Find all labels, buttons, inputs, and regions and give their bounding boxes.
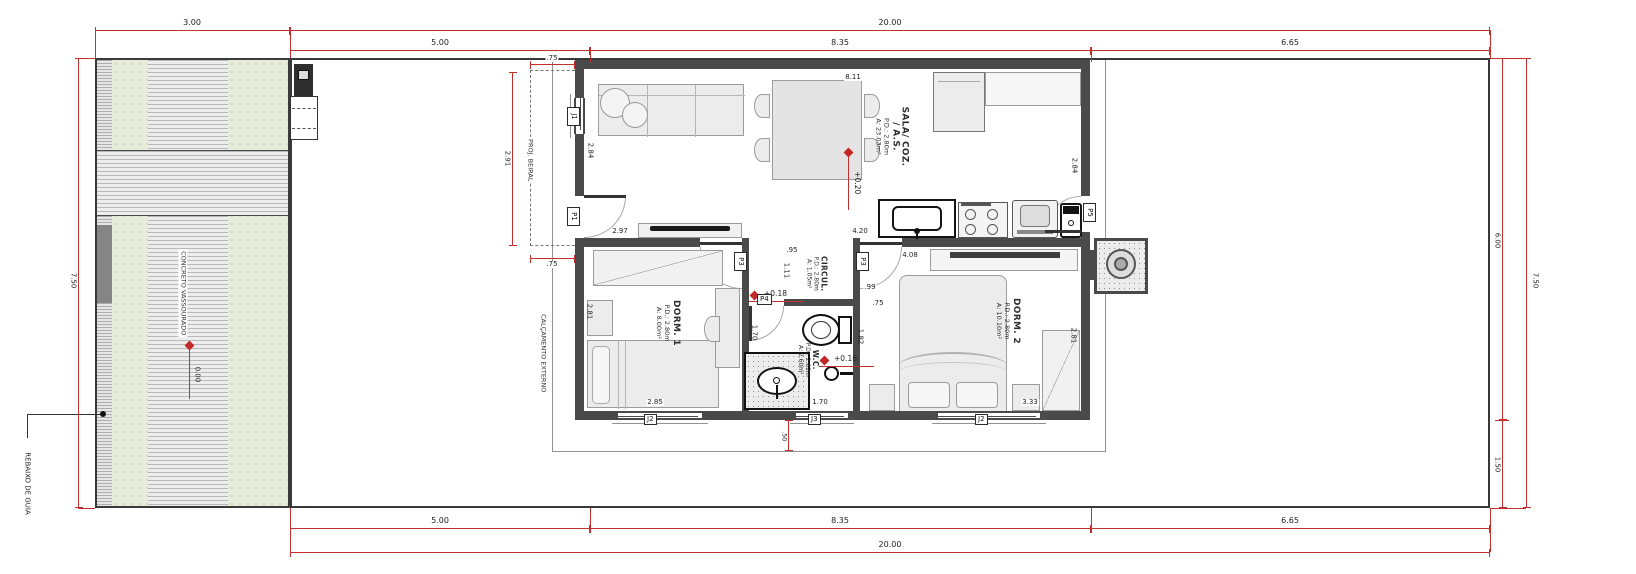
fridge (933, 72, 985, 132)
sofa-pouf-2 (622, 102, 648, 128)
ext-line (78, 58, 95, 59)
kitchen-counter-top (985, 72, 1081, 106)
dim-line-bot-seg3 (1091, 528, 1490, 529)
house-wall-top (575, 60, 1090, 69)
driveway-outline (95, 58, 290, 508)
ext-line (590, 508, 591, 528)
dim-line-top-seg3 (1091, 50, 1490, 51)
tag-j1: J1 (567, 107, 580, 126)
ext-line (1490, 58, 1526, 59)
house-wall-right-1 (1081, 60, 1090, 196)
dim-line-eave-w2 (530, 258, 575, 259)
dim-back-right: 1.50 (1491, 448, 1503, 480)
ext-line (1490, 30, 1491, 58)
tag-p3-dorm2: P3 (856, 252, 869, 271)
curb-leader-dot (100, 411, 106, 417)
ext-line (1490, 508, 1526, 509)
level-marker-sala-line (848, 156, 849, 210)
dining-chair (754, 138, 770, 162)
toilet-tank (838, 316, 852, 344)
dim-top-seg3: 6.65 (1281, 39, 1299, 47)
wall-divider-left (575, 238, 700, 247)
pillow-dorm2 (908, 382, 950, 408)
wardrobe-dorm1 (593, 250, 723, 286)
dim-line-lot-width-bottom (290, 552, 1490, 553)
dim-line-top-seg1 (290, 50, 590, 51)
dim-top-seg1: 5.00 (431, 39, 449, 47)
dim-lot-width-bottom: 20.00 (879, 541, 902, 549)
curb-leader-h (27, 414, 103, 415)
wall-divider-right (902, 238, 1081, 247)
walkway-label: CALÇAMENTO EXTERNO (536, 298, 550, 408)
window-j3-wc (796, 411, 848, 420)
ext-line (1091, 508, 1092, 528)
tag-j3: J3 (808, 414, 821, 425)
room-label-dorm2: DORM. 2 P.D.: 2.80m A: 10.10m² (988, 286, 1028, 356)
dim-wc-height: 1.70 (749, 318, 759, 346)
tag-p4: P4 (757, 294, 772, 305)
tag-p5: P5 (1083, 203, 1096, 222)
tag-j2-dorm1: J2 (644, 414, 657, 425)
door-p3-dorm2-leaf (860, 242, 902, 245)
ext-line (1495, 420, 1509, 421)
house-wall-left-1 (575, 60, 584, 98)
dim-dorm2-height: 2.81 (1068, 320, 1078, 350)
dim-line-drive-width (95, 30, 290, 31)
dim-eave-len: 2.91 (501, 140, 513, 176)
laundry-tank-stub (1088, 250, 1094, 280)
chair-dorm1 (704, 316, 720, 342)
dim-line-eave-top (530, 64, 575, 65)
tag-j2-dorm2: J2 (975, 414, 988, 425)
dim-bot-seg1: 5.00 (431, 517, 449, 525)
door-p5-leaf (1045, 230, 1081, 233)
dim-lot-height-right: 7.50 (1529, 262, 1541, 298)
dim-dorm2-width: 3.33 (1021, 399, 1039, 406)
dim-drive-width: 3.00 (183, 19, 201, 27)
dim-lot-height-left: 7.50 (67, 262, 79, 298)
dim-line-bot-seg2 (590, 528, 1091, 529)
ext-line (1490, 508, 1491, 552)
pillow-dorm2 (956, 382, 998, 408)
shelf-dorm2-bar (950, 252, 1060, 258)
eave-label: PROJ. BEIRAL (524, 118, 537, 202)
tag-p1: P1 (567, 207, 580, 226)
dim-bot-seg2: 8.35 (831, 517, 849, 525)
dim-sink-counter: 4.20 (851, 228, 869, 235)
dim-wc-right: 1.82 (855, 322, 865, 350)
tag-p3-dorm1: P3 (734, 252, 747, 271)
dim-lot-width-top: 20.00 (879, 19, 902, 27)
level-marker-wc-lower-line (819, 366, 874, 367)
level-marker-sala: +0.20 (851, 160, 863, 206)
dim-top-seg2: 8.35 (831, 39, 849, 47)
dim-tv-wall: 2.97 (611, 228, 629, 235)
driveway-surface-label: CONCRETO VASSOURADO (174, 228, 192, 358)
dim-shelf: 4.08 (901, 252, 919, 259)
room-label-circ: CIRCUL. P.D.: 2.80m A: 1.05m² (800, 248, 834, 300)
house-wall-left-3 (575, 238, 584, 420)
dim-sala-left: 2.84 (585, 135, 595, 165)
dim-line-lot-width-top (290, 30, 1490, 31)
curb-note-label: REBAIXO DE GUIA (20, 440, 34, 526)
ext-line (1091, 50, 1092, 62)
level-marker-driveway: 0.00 (191, 352, 203, 396)
level-marker-wc-lower: +0.16 (834, 355, 857, 363)
nightstand-dorm2-left (869, 384, 895, 411)
stove (958, 202, 1008, 238)
gate-post-dash-top (292, 108, 316, 109)
ext-line (290, 508, 291, 552)
room-label-dorm1: DORM. 1 P.D.: 2.80m A: 8.00m² (648, 288, 688, 358)
gate-post-dash-bottom (292, 128, 316, 129)
gate-post-box (290, 96, 318, 140)
curb-leader-v (27, 414, 28, 438)
ext-line (590, 50, 591, 62)
sink-faucet-stem (916, 233, 918, 239)
dining-chair (754, 94, 770, 118)
laundry-tank-center (1114, 257, 1128, 271)
door-p3-dorm1-leaf (700, 242, 742, 245)
ext-line (78, 508, 95, 509)
dim-eave-w2: .75 (545, 261, 558, 268)
dim-eave-top: .75 (545, 55, 558, 62)
window-j2-dorm2 (938, 411, 1040, 420)
window-j2-dorm1 (618, 411, 702, 420)
dim-line-top-seg2 (590, 50, 1091, 51)
dim-sala-right: 2.84 (1069, 150, 1079, 180)
dim-dorm1-height: 2.81 (584, 296, 594, 326)
dim-walk-offset: .50 (779, 424, 789, 448)
washbasin-stem (776, 385, 778, 399)
dim-line-bot-seg1 (290, 528, 590, 529)
house-wall-left-2 (575, 134, 584, 196)
ext-line (95, 30, 96, 58)
ext-line (290, 30, 291, 58)
floor-plan: CONCRETO VASSOURADO 0.00 CALÇAMENTO EXTE… (0, 0, 1636, 574)
dim-circ-height: 1.11 (781, 256, 791, 284)
room-label-sala: SALA/ COZ. / A.S. P.D.: 2.80m A: 23.03m² (866, 96, 918, 176)
dim-circ-width: .95 (785, 247, 798, 254)
door-p1-leaf (584, 195, 626, 198)
washbasin-drain (773, 377, 780, 384)
shower-head-arm (840, 372, 853, 375)
dim-circ-right: .99 (863, 284, 876, 291)
dim-house-height-right: 6.00 (1491, 222, 1503, 258)
dim-wall-stub: .75 (871, 300, 884, 307)
energy-meter-icon (294, 64, 313, 96)
dim-sala-top: 8.11 (844, 74, 862, 81)
tv-icon (650, 226, 730, 231)
dim-line-lot-height-right (1526, 58, 1527, 508)
dim-dorm1-width: 2.85 (646, 399, 664, 406)
dim-bot-seg3: 6.65 (1281, 517, 1299, 525)
energy-meter-window (298, 70, 309, 80)
dim-wc-width: 1.70 (811, 399, 829, 406)
shower-head-icon (824, 366, 839, 381)
